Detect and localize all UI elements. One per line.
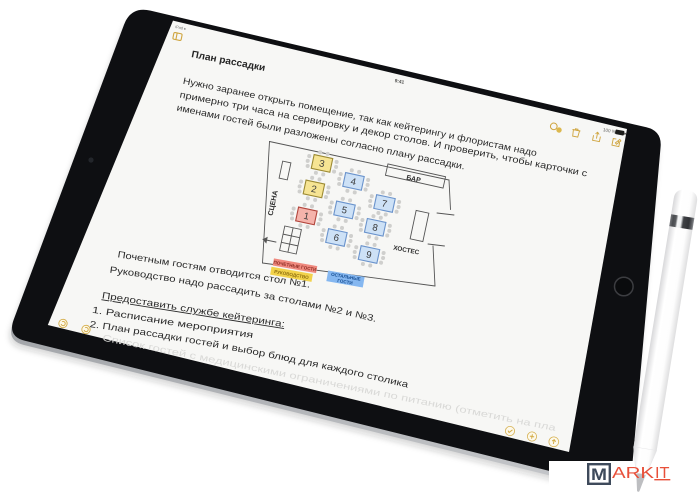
svg-text:ARK: ARK	[612, 465, 654, 482]
svg-text:M: M	[591, 465, 607, 484]
